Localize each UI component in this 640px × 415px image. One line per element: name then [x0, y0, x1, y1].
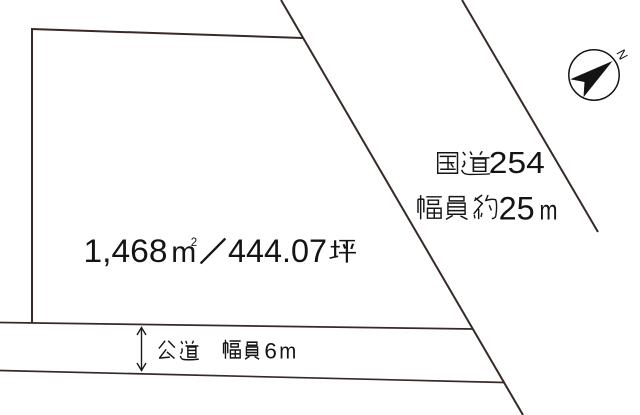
svg-text:254: 254 — [489, 146, 545, 180]
svg-text:25: 25 — [499, 190, 535, 226]
svg-text:1,468: 1,468 — [84, 233, 168, 269]
svg-text:444.07: 444.07 — [228, 233, 327, 269]
svg-text:2: 2 — [191, 237, 197, 249]
svg-text:m: m — [279, 338, 296, 363]
svg-text:m: m — [540, 194, 558, 225]
svg-text:6: 6 — [264, 338, 277, 363]
